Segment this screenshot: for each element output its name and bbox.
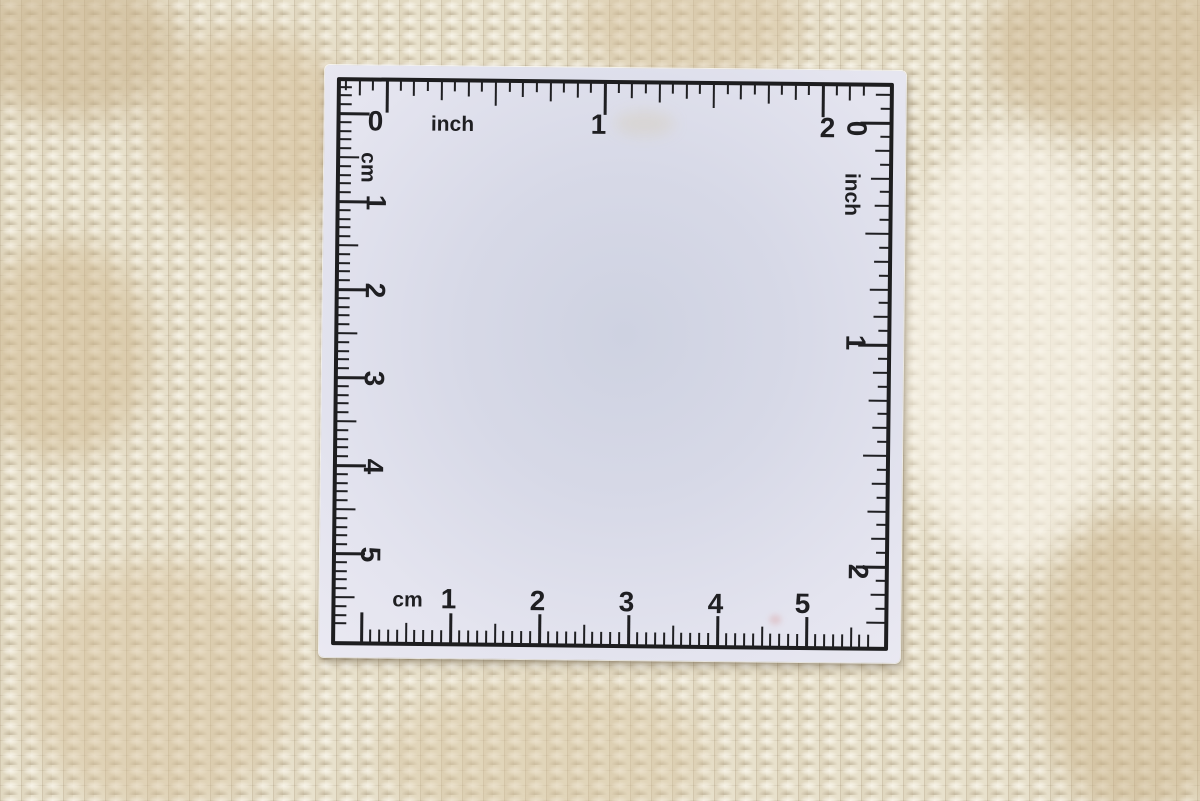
right-inch-scale-tick [879,247,889,249]
left-cm-scale-tick [335,570,347,572]
paper-smudge [614,110,674,137]
top-inch-scale-tick [849,85,851,100]
bottom-cm-scale-tick [600,632,602,645]
bottom-cm-scale-tick [805,617,808,647]
bottom-cm-scale-tick [574,632,576,645]
top-inch-scale-tick [508,82,510,92]
bottom-cm-scale-tick [583,625,585,645]
right-inch-scale-tick [875,205,890,207]
right-inch-scale-tick [879,302,889,304]
right-inch-scale-tick [873,316,888,318]
bottom-cm-scale-tick [769,634,771,647]
right-inch-scale-tick [880,163,890,165]
right-inch-scale-tick [871,177,890,179]
bottom-cm-scale-tick [796,634,798,647]
bottom-cm-scale-tick [627,615,630,645]
bottom-cm-scale-tick [841,634,843,647]
left-cm-scale-tick [340,112,370,115]
top-inch-scale-tick [795,85,797,100]
top-inch-scale-tick [372,80,374,90]
left-cm-scale-tick [340,95,352,97]
bottom-cm-scale-tick [520,631,522,644]
bottom-cm-scale-tick [467,630,469,643]
right-inch-scale-tick [876,94,891,96]
left-cm-scale-tick [337,341,349,343]
carpet-patch [150,30,350,230]
top-inch-scale-tick [645,83,647,93]
bottom-cm-scale-tick [832,634,834,647]
left-cm-scale-tick [335,534,347,536]
bottom-cm-scale-tick [556,631,558,644]
right-inch-scale-tick [876,524,886,526]
bottom-cm-scale-tick [787,634,789,647]
right-inch-scale-tick [876,580,886,582]
bottom-cm-scale-tick [707,633,709,646]
bottom-cm-scale-tick [725,633,727,646]
right-inch-scale-tick [877,441,887,443]
bottom-cm-scale-tick [778,634,780,647]
top-inch-scale-tick [631,83,633,98]
right-inch-scale-tick [880,136,890,138]
top-inch-scale-tick [468,81,470,96]
left-cm-scale-tick [334,614,346,616]
ruler-frame [331,77,894,651]
left-cm-scale-tick [340,86,352,88]
bottom-cm-scale-tick [858,635,860,648]
left-cm-scale-tick [339,209,351,211]
left-cm-scale-tick [339,130,351,132]
right-inch-scale-tick [871,593,886,595]
left-cm-scale-tick [336,490,348,492]
bottom-cm-scale-tick [645,632,647,645]
right-inch-scale-tick [871,538,886,540]
right-inch-scale-tick [875,149,890,151]
top-inch-scale-label-1: 1 [591,111,607,139]
top-inch-scale-tick [686,84,688,99]
bottom-cm-scale-tick [716,616,719,646]
right-inch-scale-label-1: 1 [841,335,869,351]
left-cm-scale-tick [336,420,356,422]
bottom-cm-scale-tick [360,612,363,642]
top-inch-scale-tick [440,81,442,100]
right-inch-scale-tick [875,607,885,609]
right-inch-scale-tick [878,385,888,387]
left-cm-scale-tick [335,517,347,519]
top-inch-scale-tick [835,85,837,95]
left-cm-scale-tick [338,279,350,281]
left-cm-scale-tick [336,447,348,449]
bottom-cm-scale-tick [405,623,407,643]
bottom-cm-scale-tick [680,633,682,646]
right-inch-scale-tick [873,371,888,373]
top-inch-scale-tick [454,81,456,91]
top-inch-scale-tick [563,82,565,92]
left-cm-scale-tick [338,262,350,264]
bottom-cm-scale-tick [618,632,620,645]
bottom-cm-scale-tick [752,633,754,646]
left-cm-scale-tick [337,367,349,369]
left-cm-scale-tick [337,385,349,387]
left-cm-scale-tick [336,473,348,475]
left-cm-scale-tick [338,227,350,229]
left-cm-scale-tick [338,244,358,246]
bottom-cm-scale-tick [591,632,593,645]
right-inch-scale-tick [876,552,886,554]
right-inch-scale-tick [872,427,887,429]
right-inch-scale-tick [878,330,888,332]
top-inch-scale-tick [713,84,715,108]
left-cm-scale-tick [336,499,348,501]
paper-smudge [769,615,781,625]
bottom-cm-scale-tick [511,631,513,644]
bottom-cm-scale-tick [743,633,745,646]
left-cm-scale-label-2: 2 [361,283,389,299]
left-cm-scale-tick [337,315,349,317]
bottom-cm-scale-label-cm: cm [392,589,423,610]
right-inch-scale-tick [870,288,889,290]
left-cm-scale-tick [339,191,351,193]
left-cm-scale-tick [339,165,351,167]
top-inch-scale-tick [740,84,742,99]
bottom-cm-scale-tick [387,630,389,643]
right-inch-scale-tick [866,621,885,623]
top-inch-scale-tick [658,83,660,102]
left-cm-scale-tick [337,359,349,361]
bottom-cm-scale-tick [734,633,736,646]
left-cm-scale-tick [338,235,350,237]
ruler-card: 0inch120inch12cm12345cm12345 [319,65,906,663]
right-inch-scale-tick [877,496,887,498]
left-cm-scale-tick [338,306,350,308]
right-inch-scale-tick [865,233,889,235]
top-inch-scale-tick [781,85,783,95]
bottom-cm-scale-tick [449,613,452,643]
left-cm-scale-tick [337,394,349,396]
carpet-patch [895,130,1120,570]
bottom-cm-scale-tick [431,630,433,643]
right-inch-scale-tick [877,469,887,471]
bottom-cm-scale-tick [369,629,371,642]
bottom-cm-scale-tick [867,635,869,648]
left-cm-scale-tick [336,438,348,440]
left-cm-scale-tick [337,323,349,325]
top-inch-scale-tick [536,82,538,92]
bottom-cm-scale-tick [458,630,460,643]
left-cm-scale-tick [336,482,348,484]
left-cm-scale-tick [334,605,346,607]
top-inch-scale-tick [863,86,865,96]
bottom-cm-scale-tick [396,630,398,643]
left-cm-scale-tick [336,429,348,431]
left-cm-scale-tick [335,526,347,528]
top-inch-scale-tick [767,85,769,104]
top-inch-scale-tick [385,81,388,113]
top-inch-scale-tick [481,82,483,92]
left-cm-scale-tick [336,455,348,457]
left-cm-scale-tick [340,121,352,123]
bottom-cm-scale-tick [698,633,700,646]
right-inch-scale-tick [878,358,888,360]
left-cm-scale-tick [337,350,349,352]
bottom-cm-scale-tick [636,632,638,645]
bottom-cm-scale-tick [565,632,567,645]
bottom-cm-scale-label-2: 2 [530,587,546,615]
top-inch-scale-tick [359,80,361,95]
right-inch-scale-label-0: 0 [842,121,870,137]
right-inch-scale-label-2: 2 [844,564,872,580]
left-cm-scale-label-5: 5 [356,547,384,563]
left-cm-scale-tick [340,103,352,105]
left-cm-scale-tick [335,508,355,510]
bottom-cm-scale-tick [538,614,541,644]
right-inch-scale-tick [867,510,886,512]
bottom-cm-scale-tick [814,634,816,647]
bottom-cm-scale-tick [609,632,611,645]
top-inch-scale-tick [590,83,592,93]
top-inch-scale-tick [754,84,756,94]
bottom-cm-scale-tick [378,630,380,643]
left-cm-scale-label-4: 4 [359,459,387,475]
left-cm-scale-tick [338,271,350,273]
right-inch-scale-tick [863,455,887,457]
top-inch-scale-label-inch: inch [431,114,474,135]
right-inch-scale-tick [869,399,888,401]
left-cm-scale-tick [335,561,347,563]
bottom-cm-scale-tick [547,631,549,644]
bottom-cm-scale-tick [761,627,763,647]
bottom-cm-scale-tick [529,631,531,644]
left-cm-scale-tick [335,596,355,598]
bottom-cm-scale-tick [689,633,691,646]
left-cm-scale-tick [339,139,351,141]
left-cm-scale-tick [338,253,350,255]
top-inch-scale-tick [413,81,415,96]
bottom-cm-scale-tick [672,626,674,646]
left-cm-scale-tick [336,411,348,413]
left-cm-scale-tick [337,403,349,405]
right-inch-scale-tick [877,413,887,415]
bottom-cm-scale-tick [502,631,504,644]
top-inch-scale-tick [617,83,619,93]
left-cm-scale-tick [339,147,351,149]
top-inch-scale-tick [427,81,429,91]
bottom-cm-scale-tick [413,630,415,643]
right-inch-scale-tick [881,108,891,110]
top-inch-scale-tick [672,84,674,94]
bottom-cm-scale-tick [654,632,656,645]
carpet-patch [25,560,295,801]
photo-scene: 0inch120inch12cm12345cm12345 [0,0,1200,801]
left-cm-scale-tick [335,587,347,589]
right-inch-scale-tick [880,219,890,221]
left-cm-scale-tick [338,297,350,299]
right-inch-scale-tick [872,482,887,484]
left-cm-scale-tick [334,622,346,624]
bottom-cm-scale-tick [476,631,478,644]
bottom-cm-scale-label-1: 1 [441,585,457,613]
left-cm-scale-tick [339,174,351,176]
bottom-cm-scale-label-4: 4 [708,590,724,618]
top-inch-scale-tick [808,85,810,95]
top-inch-scale-tick [577,83,579,98]
bottom-cm-scale-tick [823,634,825,647]
left-cm-scale-label-cm: cm [357,152,378,183]
right-inch-scale-tick [874,260,889,262]
left-cm-scale-tick [338,218,350,220]
top-inch-scale-tick [726,84,728,94]
top-inch-scale-tick [699,84,701,94]
top-inch-scale-tick [399,81,401,91]
right-inch-scale-label-inch: inch [841,173,862,216]
left-cm-scale-label-3: 3 [360,371,388,387]
left-cm-scale-tick [335,578,347,580]
left-cm-scale-tick [339,183,351,185]
left-cm-scale-tick [337,332,357,334]
top-inch-scale-label-2: 2 [820,114,836,142]
bottom-cm-scale-tick [494,624,496,644]
top-inch-scale-tick [522,82,524,97]
bottom-cm-scale-tick [422,630,424,643]
bottom-cm-scale-tick [440,630,442,643]
left-cm-scale-label-1: 1 [362,195,390,211]
bottom-cm-scale-tick [663,633,665,646]
bottom-cm-scale-tick [850,627,852,647]
top-inch-scale-label-0: 0 [368,107,384,135]
bottom-cm-scale-label-5: 5 [795,590,811,618]
bottom-cm-scale-tick [485,631,487,644]
top-inch-scale-tick [549,82,551,101]
right-inch-scale-tick [880,191,890,193]
left-cm-scale-tick [335,543,347,545]
bottom-cm-scale-label-3: 3 [619,588,635,616]
right-inch-scale-tick [879,274,889,276]
top-inch-scale-tick [495,82,497,106]
